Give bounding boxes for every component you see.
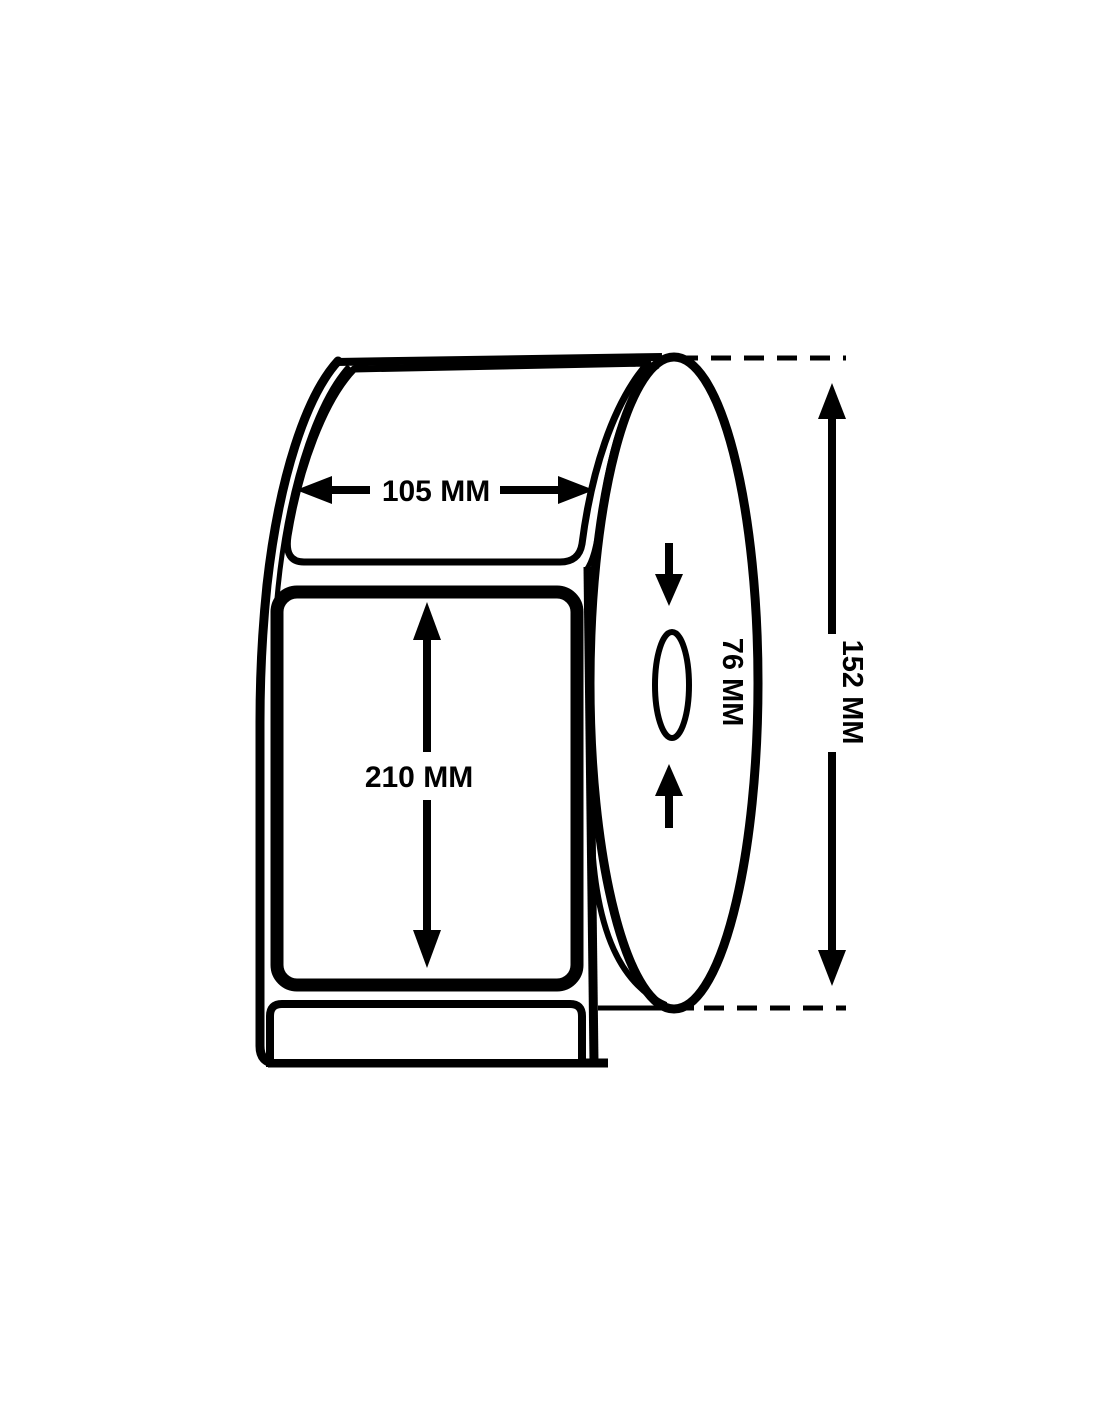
- label-roll-diagram: 76 MM 105 MM 210 MM 152 MM: [0, 0, 1100, 1422]
- top-label: [287, 363, 648, 562]
- roll-diameter-label: 152 MM: [836, 640, 868, 745]
- diameter-arrow-up-icon: [818, 383, 846, 419]
- label-width-label: 105 MM: [382, 475, 490, 508]
- next-label: [270, 1004, 582, 1063]
- web-right-edge: [588, 567, 594, 1063]
- core-hole: [655, 632, 689, 738]
- page: 76 MM 105 MM 210 MM 152 MM: [0, 0, 1100, 1422]
- core-diameter-label: 76 MM: [716, 638, 748, 727]
- label-height-label: 210 MM: [365, 761, 473, 794]
- diameter-arrow-down-icon: [818, 950, 846, 986]
